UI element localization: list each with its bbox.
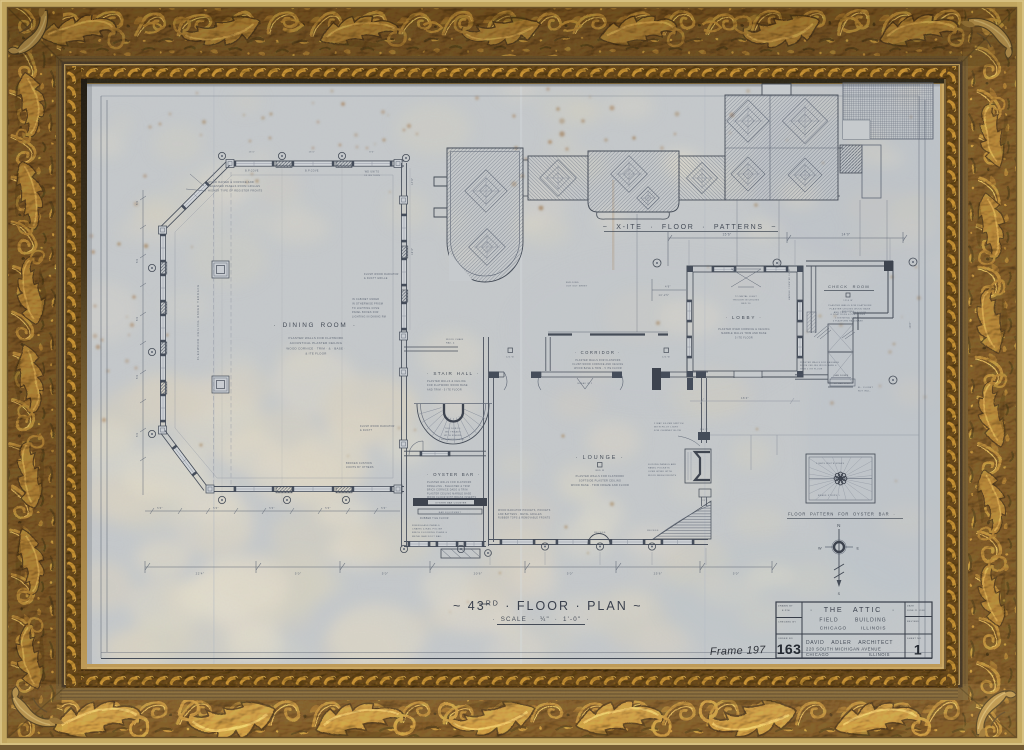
svg-text:PLASTER OVER CORNICE & CEILING: PLASTER OVER CORNICE & CEILING bbox=[718, 328, 770, 331]
svg-text:· STAIR HALL ·: · STAIR HALL · bbox=[427, 371, 480, 376]
svg-text:~ 43RD · FLOOR · PLAN ~: ~ 43RD · FLOOR · PLAN ~ bbox=[453, 599, 643, 613]
svg-text:PANEL BOXES FOR: PANEL BOXES FOR bbox=[352, 311, 379, 314]
svg-text:5'6: 5'6 bbox=[136, 258, 139, 263]
svg-text:TROUGH IN CEILING: TROUGH IN CEILING bbox=[733, 299, 760, 301]
svg-text:BUILDING: BUILDING bbox=[566, 282, 579, 284]
svg-text:PLASTER WALLS FOR FLATWORK: PLASTER WALLS FOR FLATWORK bbox=[575, 359, 620, 362]
svg-text:WD UNITS: WD UNITS bbox=[365, 172, 380, 174]
svg-text:· SCALE · ¼" · 1'-0" ·: · SCALE · ¼" · 1'-0" · bbox=[493, 616, 590, 623]
svg-text:5'0": 5'0" bbox=[567, 572, 574, 576]
svg-text:TRIM 5 ITE FLOOR: TRIM 5 ITE FLOOR bbox=[800, 368, 823, 370]
svg-text:NON-FERROUS RL: NON-FERROUS RL bbox=[441, 439, 465, 441]
svg-text:5 BAYS WHITE BRASS: 5 BAYS WHITE BRASS bbox=[816, 462, 845, 465]
svg-text:22'4": 22'4" bbox=[196, 572, 205, 576]
svg-text:E: E bbox=[857, 547, 860, 551]
svg-text:BED W: BED W bbox=[596, 470, 605, 472]
svg-text:DATE: DATE bbox=[907, 605, 914, 608]
svg-text:PLASTER WALLS FOR FLATWORK: PLASTER WALLS FOR FLATWORK bbox=[288, 336, 343, 340]
svg-text:TO METAL LIGHT: TO METAL LIGHT bbox=[735, 295, 757, 298]
svg-text:BED 10: BED 10 bbox=[741, 303, 751, 305]
svg-text:20'6": 20'6" bbox=[474, 572, 483, 576]
svg-text:FIBERGLASS PANELS: FIBERGLASS PANELS bbox=[412, 524, 440, 527]
svg-text:FLEXWOOD CEILING UNDER TERRACE: FLEXWOOD CEILING UNDER TERRACE bbox=[196, 284, 200, 360]
svg-text:EL. CLOSET: EL. CLOSET bbox=[858, 387, 873, 389]
svg-text:BROKEN CUSHION: BROKEN CUSHION bbox=[346, 462, 372, 465]
svg-text:WOOD MESH FRONTS: WOOD MESH FRONTS bbox=[648, 475, 677, 477]
svg-text:16'0": 16'0" bbox=[411, 248, 414, 255]
svg-text:SOFTSIDE PLASTER CEILING: SOFTSIDE PLASTER CEILING bbox=[579, 479, 622, 482]
svg-text:OVER WORK WITH: OVER WORK WITH bbox=[648, 471, 672, 473]
svg-text:RUBBER TOPS & REMOVABLE FRONTS: RUBBER TOPS & REMOVABLE FRONTS bbox=[498, 517, 551, 520]
svg-text:& DUCT? GRILLE: & DUCT? GRILLE bbox=[364, 277, 388, 280]
svg-text:12 CAB 1210: 12 CAB 1210 bbox=[834, 382, 850, 385]
svg-text:FLUSH WOOD CORNICE AND CEILING: FLUSH WOOD CORNICE AND CEILING bbox=[573, 363, 624, 366]
svg-text:6 PLATFORM HARDWARE: 6 PLATFORM HARDWARE bbox=[833, 320, 864, 323]
svg-text:SHEET NO: SHEET NO bbox=[907, 638, 921, 640]
svg-text:WOOD CHAIR: WOOD CHAIR bbox=[446, 338, 464, 341]
svg-text:RAIL &: RAIL & bbox=[446, 341, 455, 344]
svg-text:6 COAT RODS & PLATFORMS: 6 COAT RODS & PLATFORMS bbox=[831, 313, 866, 316]
svg-text:MARBLE WALLS TRIM AND BASE: MARBLE WALLS TRIM AND BASE bbox=[721, 332, 767, 335]
svg-text:PLASTER CEILING MARBLE BASE: PLASTER CEILING MARBLE BASE bbox=[427, 492, 472, 495]
svg-text:5'6": 5'6" bbox=[213, 508, 218, 510]
svg-text:W: W bbox=[818, 547, 822, 551]
svg-text:WITH RISERS: WITH RISERS bbox=[444, 435, 462, 437]
svg-text:ROOM CEILING WOOD BASE &: ROOM CEILING WOOD BASE & bbox=[800, 364, 837, 367]
svg-text:5'0": 5'0" bbox=[295, 572, 302, 576]
svg-text:163: 163 bbox=[777, 641, 802, 657]
svg-text:WOOD RADIATOR POCKETS, POCKETS: WOOD RADIATOR POCKETS, POCKETS bbox=[498, 509, 551, 512]
svg-text:REVISED: REVISED bbox=[907, 621, 919, 623]
svg-text:BRICK CORNICE DADO & TRIM: BRICK CORNICE DADO & TRIM bbox=[427, 489, 468, 492]
svg-text:FLUSH WOOD RADIATOR: FLUSH WOOD RADIATOR bbox=[360, 425, 395, 428]
svg-text:25'6": 25'6" bbox=[654, 572, 663, 576]
svg-text:OF RETURN: OF RETURN bbox=[364, 175, 380, 177]
svg-text:& ITE FLOOR: & ITE FLOOR bbox=[305, 352, 326, 356]
svg-text:5'6: 5'6 bbox=[136, 200, 139, 205]
svg-text:RECESS: RECESS bbox=[647, 530, 659, 532]
svg-text:PLASTER WALLS FOR BAGGAGE: PLASTER WALLS FOR BAGGAGE bbox=[800, 361, 840, 364]
svg-text:B.P.COVE: B.P.COVE bbox=[305, 171, 319, 173]
svg-text:WOOD RAISED & CORNICE AND: WOOD RAISED & CORNICE AND bbox=[208, 181, 254, 184]
svg-text:1: 1 bbox=[914, 642, 922, 658]
svg-text:JOINTS BY OTHERS: JOINTS BY OTHERS bbox=[346, 466, 374, 469]
svg-text:WOOD BASE · TRIM FRIEZE AND FL: WOOD BASE · TRIM FRIEZE AND FLOOR bbox=[571, 484, 629, 487]
svg-text:· LOBBY ·: · LOBBY · bbox=[725, 315, 762, 320]
svg-text:FOR FLATWORK WOOD BASE: FOR FLATWORK WOOD BASE bbox=[427, 384, 468, 387]
svg-text:2 WAY SILVER SWITCH: 2 WAY SILVER SWITCH bbox=[654, 422, 684, 425]
svg-text:220 SOUTH MICHIGAN AVENUE: 220 SOUTH MICHIGAN AVENUE bbox=[806, 647, 881, 652]
svg-text:BRASS STRIPS ¾: BRASS STRIPS ¾ bbox=[818, 494, 840, 497]
svg-text:14'6": 14'6" bbox=[910, 321, 912, 328]
svg-text:SHELVING: SHELVING bbox=[842, 311, 855, 313]
svg-text:5'6: 5'6 bbox=[136, 316, 139, 321]
svg-text:8'6": 8'6" bbox=[369, 152, 374, 154]
svg-text:FLOOR PATTERN FOR OYSTER BAR ·: FLOOR PATTERN FOR OYSTER BAR · bbox=[788, 512, 896, 517]
svg-text:ACOUSTICAL PLASTER CEILING: ACOUSTICAL PLASTER CEILING bbox=[290, 341, 343, 345]
svg-text:B.P.COVE: B.P.COVE bbox=[245, 171, 259, 173]
svg-text:14'6": 14'6" bbox=[411, 178, 414, 185]
svg-text:5'6: 5'6 bbox=[136, 432, 139, 437]
svg-text:21'3: 21'3 bbox=[702, 500, 708, 502]
svg-text:LIGHTING IN DINING RM: LIGHTING IN DINING RM bbox=[352, 316, 386, 319]
svg-text:CHECK ROOM: CHECK ROOM bbox=[828, 284, 870, 289]
svg-text:CHAIRS & RAIL POLISH: CHAIRS & RAIL POLISH bbox=[412, 528, 442, 531]
svg-text:Frame 197: Frame 197 bbox=[710, 644, 767, 658]
svg-text:5'6": 5'6" bbox=[325, 508, 330, 510]
svg-text:TILE SUB FL.: TILE SUB FL. bbox=[444, 428, 461, 430]
svg-text:BIRCH FLOORING PLANK &: BIRCH FLOORING PLANK & bbox=[412, 531, 448, 534]
svg-text:5'0": 5'0" bbox=[733, 572, 740, 576]
svg-text:HIGHER TYPE OF REGISTER FRONTS: HIGHER TYPE OF REGISTER FRONTS bbox=[208, 189, 263, 192]
svg-text:PANEL POCKETS: PANEL POCKETS bbox=[648, 467, 670, 470]
svg-text:DAVID ADLER ARCHITECT: DAVID ADLER ARCHITECT bbox=[806, 640, 893, 646]
svg-text:110 W: 110 W bbox=[700, 429, 708, 431]
svg-text:OYSTER BAR COUNTER: OYSTER BAR COUNTER bbox=[435, 502, 467, 505]
svg-text:CHICAGO ILLINOIS: CHICAGO ILLINOIS bbox=[820, 626, 886, 631]
svg-text:5'0": 5'0" bbox=[382, 572, 389, 576]
svg-text:16'4": 16'4" bbox=[741, 396, 749, 400]
svg-text:PLASTER WALLS FOR FLATWORK: PLASTER WALLS FOR FLATWORK bbox=[576, 475, 625, 478]
svg-text:CHICAGO ILLINOIS: CHICAGO ILLINOIS bbox=[806, 652, 890, 657]
svg-text:BREAK IN 2: BREAK IN 2 bbox=[577, 382, 592, 385]
svg-text:5'6": 5'6" bbox=[381, 508, 386, 510]
svg-text:E.P.M.: E.P.M. bbox=[782, 610, 791, 612]
svg-text:· LOUNGE ·: · LOUNGE · bbox=[575, 455, 624, 461]
svg-text:SLIDING PANELS AND: SLIDING PANELS AND bbox=[648, 463, 676, 466]
svg-text:TO LIGHTING COVE: TO LIGHTING COVE bbox=[352, 307, 380, 310]
svg-text:CHECKED BY: CHECKED BY bbox=[778, 622, 796, 624]
svg-text:AND BATTENS · METAL GRILLES: AND BATTENS · METAL GRILLES bbox=[498, 513, 542, 516]
svg-text:PLASTER WALLS FOR FLATWORK: PLASTER WALLS FOR FLATWORK bbox=[828, 304, 872, 307]
svg-text:BAR EQUIPMENT: BAR EQUIPMENT bbox=[439, 511, 462, 514]
svg-text:5'6": 5'6" bbox=[157, 508, 162, 510]
svg-text:124 W: 124 W bbox=[506, 357, 514, 359]
svg-text:IN OTHERWISE PRISM: IN OTHERWISE PRISM bbox=[352, 302, 383, 305]
svg-text:& DUCT?: & DUCT? bbox=[360, 429, 373, 432]
svg-text:FIELD BUILDING: FIELD BUILDING bbox=[819, 618, 886, 624]
svg-text:WITH PILOT LIGHT: WITH PILOT LIGHT bbox=[654, 427, 679, 429]
svg-text:· CORRIDOR ·: · CORRIDOR · bbox=[575, 350, 621, 355]
svg-text:15'0": 15'0" bbox=[309, 152, 316, 154]
svg-text:AND TRIM - 5 ITE FLOOR: AND TRIM - 5 ITE FLOOR bbox=[427, 388, 462, 391]
svg-text:RECESSED PANELS ROOM GRILLES: RECESSED PANELS ROOM GRILLES bbox=[208, 185, 260, 188]
svg-text:WD TREADS: WD TREADS bbox=[445, 431, 461, 434]
svg-text:WOOD CORNICE · TRIM · & · BASE: WOOD CORNICE · TRIM · & · BASE · bbox=[286, 346, 345, 350]
svg-text:· THE ATTIC ·: · THE ATTIC · bbox=[810, 605, 896, 614]
svg-text:PLASTER WALLS FOR FLATWORK: PLASTER WALLS FOR FLATWORK bbox=[427, 481, 472, 484]
svg-text:DRAWN BY: DRAWN BY bbox=[778, 605, 793, 608]
svg-text:OUT OUT SHEET: OUT OUT SHEET bbox=[566, 285, 588, 287]
svg-text:RECESS: RECESS bbox=[594, 532, 606, 534]
svg-text:FOR CHIMNEY BLOW: FOR CHIMNEY BLOW bbox=[654, 430, 682, 432]
svg-text:METAL BAR FOOT RAIL: METAL BAR FOOT RAIL bbox=[412, 535, 442, 538]
svg-text:· OYSTER BAR ·: · OYSTER BAR · bbox=[427, 472, 480, 477]
svg-text:FLUSH WOOD RADIATOR: FLUSH WOOD RADIATOR bbox=[364, 273, 399, 276]
svg-text:PANELLING - BLEACHED & TRIM: PANELLING - BLEACHED & TRIM bbox=[427, 485, 470, 488]
svg-text:4'6": 4'6" bbox=[665, 285, 671, 289]
svg-text:ORDER NO: ORDER NO bbox=[778, 638, 793, 640]
svg-text:MARBLE COUNTER OVER: MARBLE COUNTER OVER bbox=[788, 269, 791, 300]
svg-text:IN CABINET UNDER: IN CABINET UNDER bbox=[352, 298, 379, 301]
svg-text:WOOD BASE & TRIM - 5 ITE FLOOR: WOOD BASE & TRIM - 5 ITE FLOOR bbox=[574, 367, 622, 370]
svg-text:15'0": 15'0" bbox=[249, 152, 256, 154]
svg-text:· DINING ROOM ·: · DINING ROOM · bbox=[273, 322, 356, 329]
svg-text:PLASTER WALLS & CEILING: PLASTER WALLS & CEILING bbox=[427, 380, 466, 383]
svg-text:NOT INCL.: NOT INCL. bbox=[858, 390, 871, 392]
svg-text:5'6: 5'6 bbox=[136, 374, 139, 379]
svg-text:15'6": 15'6" bbox=[722, 233, 731, 237]
svg-text:N: N bbox=[837, 523, 841, 528]
svg-text:1210 W: 1210 W bbox=[843, 300, 852, 302]
svg-text:~ X-ITE · FLOOR · PATTERNS ~: ~ X-ITE · FLOOR · PATTERNS ~ bbox=[603, 224, 777, 231]
svg-text:124 W: 124 W bbox=[662, 357, 670, 359]
svg-text:JUNE 21 1938: JUNE 21 1938 bbox=[907, 610, 925, 612]
svg-text:14'-2½": 14'-2½" bbox=[659, 293, 670, 297]
svg-text:S: S bbox=[838, 592, 841, 596]
svg-text:5'6": 5'6" bbox=[269, 508, 274, 510]
svg-text:RUBBER TILE FLOOR: RUBBER TILE FLOOR bbox=[420, 518, 449, 520]
svg-text:5 ITE FLOOR: 5 ITE FLOOR bbox=[735, 336, 753, 339]
svg-text:14'0": 14'0" bbox=[841, 233, 850, 237]
svg-text:1 BIN METAL GRILL &: 1 BIN METAL GRILL & bbox=[835, 316, 861, 319]
